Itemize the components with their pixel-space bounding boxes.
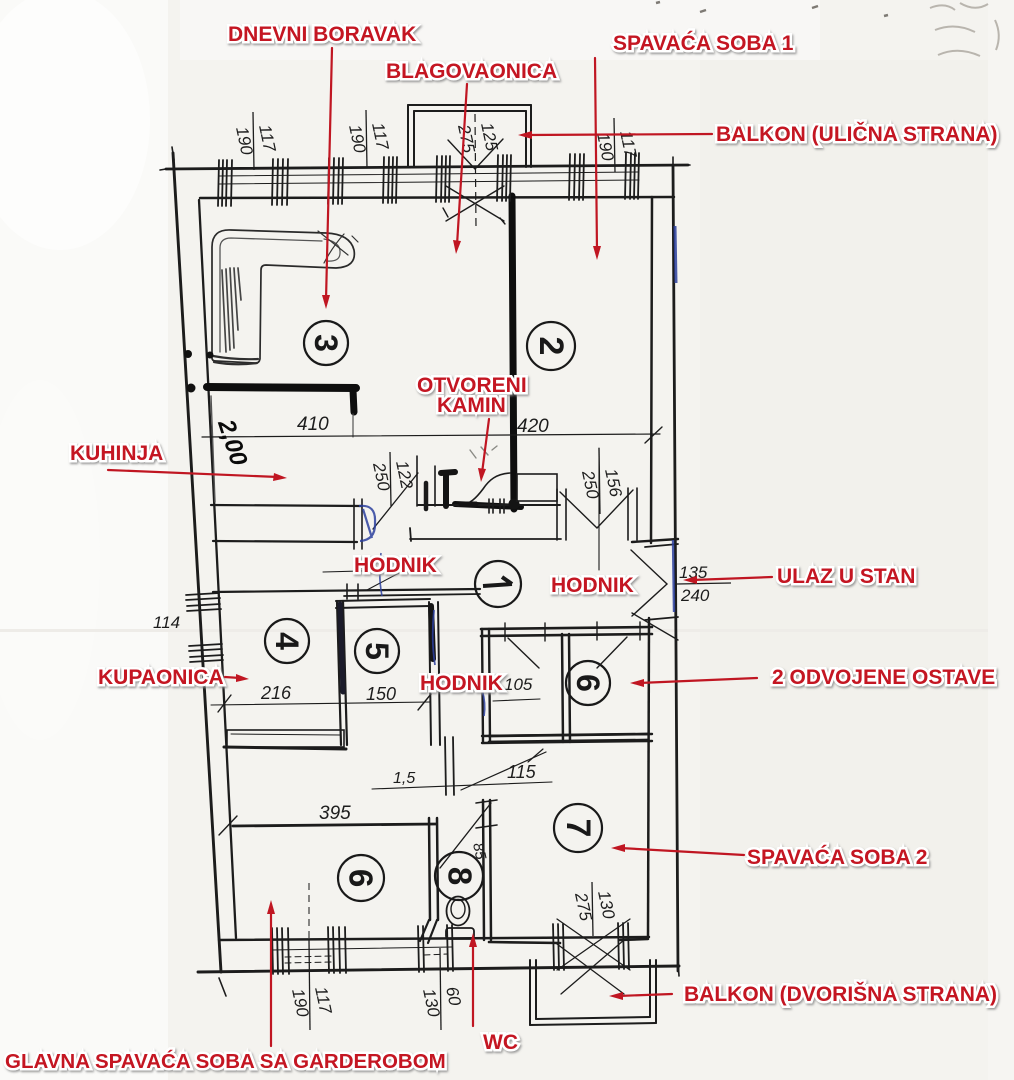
svg-text:BLAGOVAONICA: BLAGOVAONICA — [386, 60, 557, 83]
svg-text:DNEVNI BORAVAK: DNEVNI BORAVAK — [228, 23, 416, 46]
svg-text:6: 6 — [570, 674, 606, 692]
svg-text:BALKON (DVORIŠNA STRANA): BALKON (DVORIŠNA STRANA) — [684, 982, 997, 1006]
svg-text:KUPAONICA: KUPAONICA — [98, 666, 224, 689]
svg-text:SPAVAĆA SOBA 1: SPAVAĆA SOBA 1 — [613, 31, 794, 55]
svg-text:115: 115 — [507, 762, 537, 782]
svg-text:105: 105 — [504, 675, 533, 694]
svg-text:KAMIN: KAMIN — [437, 394, 506, 417]
svg-text:9: 9 — [343, 869, 380, 887]
svg-text:1,5: 1,5 — [393, 770, 415, 787]
svg-text:4: 4 — [269, 632, 305, 650]
svg-text:KUHINJA: KUHINJA — [70, 442, 163, 465]
svg-text:420: 420 — [517, 416, 549, 437]
svg-text:114: 114 — [153, 613, 180, 632]
svg-text:HODNIK: HODNIK — [354, 554, 437, 577]
svg-text:ULAZ U STAN: ULAZ U STAN — [777, 565, 915, 588]
svg-text:7: 7 — [559, 819, 597, 838]
svg-text:2 ODVOJENE OSTAVE: 2 ODVOJENE OSTAVE — [772, 666, 995, 689]
svg-text:5: 5 — [359, 642, 395, 660]
svg-text:395: 395 — [319, 803, 351, 824]
svg-text:216: 216 — [260, 683, 292, 703]
svg-text:410: 410 — [297, 414, 329, 435]
svg-text:BALKON (ULIČNA STRANA): BALKON (ULIČNA STRANA) — [716, 122, 998, 146]
svg-text:GLAVNA SPAVAĆA SOBA SA GARDERO: GLAVNA SPAVAĆA SOBA SA GARDEROBOM — [5, 1049, 446, 1073]
svg-text:WC: WC — [483, 1031, 518, 1054]
svg-text:240: 240 — [680, 586, 710, 605]
svg-text:2: 2 — [532, 337, 570, 356]
svg-text:SPAVAĆA SOBA 2: SPAVAĆA SOBA 2 — [747, 845, 927, 869]
svg-text:3: 3 — [308, 334, 344, 352]
svg-text:150: 150 — [366, 684, 396, 704]
svg-text:8: 8 — [442, 867, 479, 885]
svg-text:HODNIK: HODNIK — [420, 672, 503, 695]
svg-text:HODNIK: HODNIK — [551, 574, 634, 597]
